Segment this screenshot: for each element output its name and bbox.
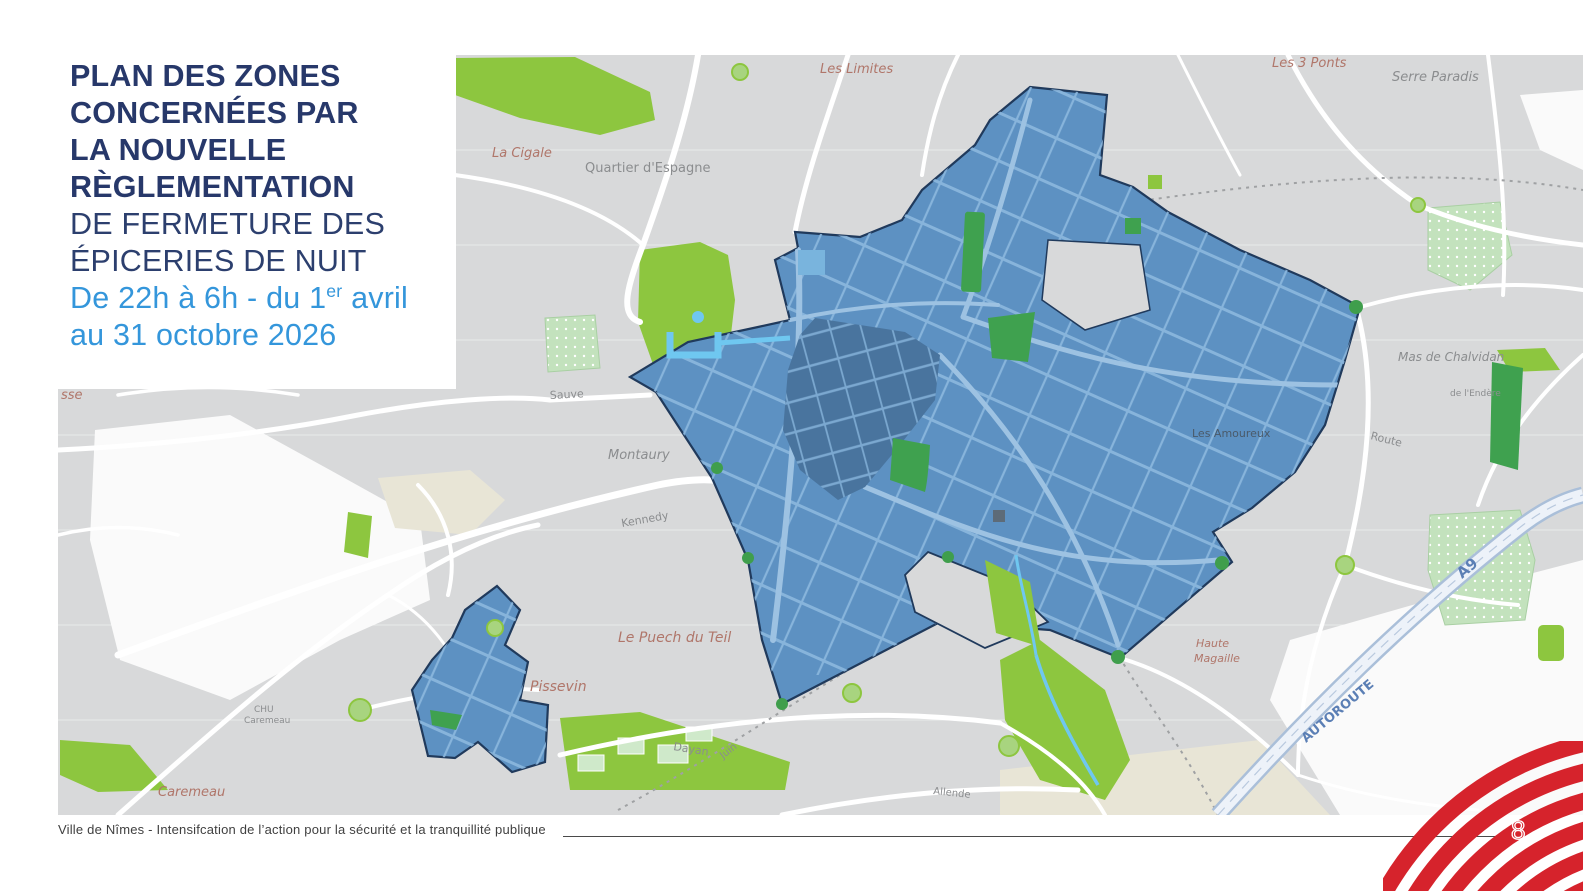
label-serre-paradis: Serre Paradis (1392, 70, 1479, 85)
label-magaille: Magaille (1194, 652, 1240, 665)
page-number: 8 (1511, 815, 1525, 845)
label-sauve: Sauve (549, 387, 584, 402)
label-endere: de l'Endère (1450, 388, 1501, 399)
title-line-4: RÈGLEMENTATION (70, 169, 450, 206)
title-line-1: PLAN DES ZONES (70, 58, 450, 95)
label-pissevin: Pissevin (530, 679, 587, 695)
label-les-limites: Les Limites (820, 62, 893, 77)
title-line-3: LA NOUVELLE (70, 132, 450, 169)
label-la-cigale: La Cigale (492, 146, 552, 161)
label-chu: CHU (254, 705, 274, 715)
footer-text: Ville de Nîmes - Intensifcation de l’act… (58, 822, 546, 837)
label-puech-du-teil: Le Puech du Teil (618, 630, 731, 646)
footer-divider (563, 836, 1495, 837)
label-mas-de-chalvidan: Mas de Chalvidan (1398, 350, 1504, 364)
slide-title: PLAN DES ZONES CONCERNÉES PAR LA NOUVELL… (70, 58, 450, 354)
subtitle-line-2: au 31 octobre 2026 (70, 317, 450, 354)
logo-red-stripes (1383, 741, 1583, 891)
subtitle-sup: er (326, 281, 342, 301)
title-line-5: DE FERMETURE DES (70, 206, 450, 243)
zone-square-plaza (798, 250, 825, 275)
title-panel: PLAN DES ZONES CONCERNÉES PAR LA NOUVELL… (0, 0, 456, 389)
label-les-3-ponts: Les 3 Ponts (1272, 56, 1347, 71)
subtitle-post: avril (342, 281, 408, 315)
title-line-6: ÉPICERIES DE NUIT (70, 243, 450, 280)
station-icon (993, 510, 1005, 522)
subtitle-line-1: De 22h à 6h - du 1er avril (70, 280, 450, 317)
label-les-amoureux: Les Amoureux (1192, 427, 1271, 440)
label-caremeau: Caremeau (158, 785, 225, 800)
title-line-2: CONCERNÉES PAR (70, 95, 450, 132)
label-haute: Haute (1196, 637, 1229, 650)
label-asse: sse (61, 388, 83, 403)
label-chu-caremeau: Caremeau (244, 716, 290, 726)
label-quartier-espagne: Quartier d'Espagne (585, 161, 711, 176)
nimes-logo: 8 (1383, 741, 1583, 891)
subtitle-pre: De 22h à 6h - du 1 (70, 281, 326, 315)
label-montaury: Montaury (608, 448, 670, 463)
